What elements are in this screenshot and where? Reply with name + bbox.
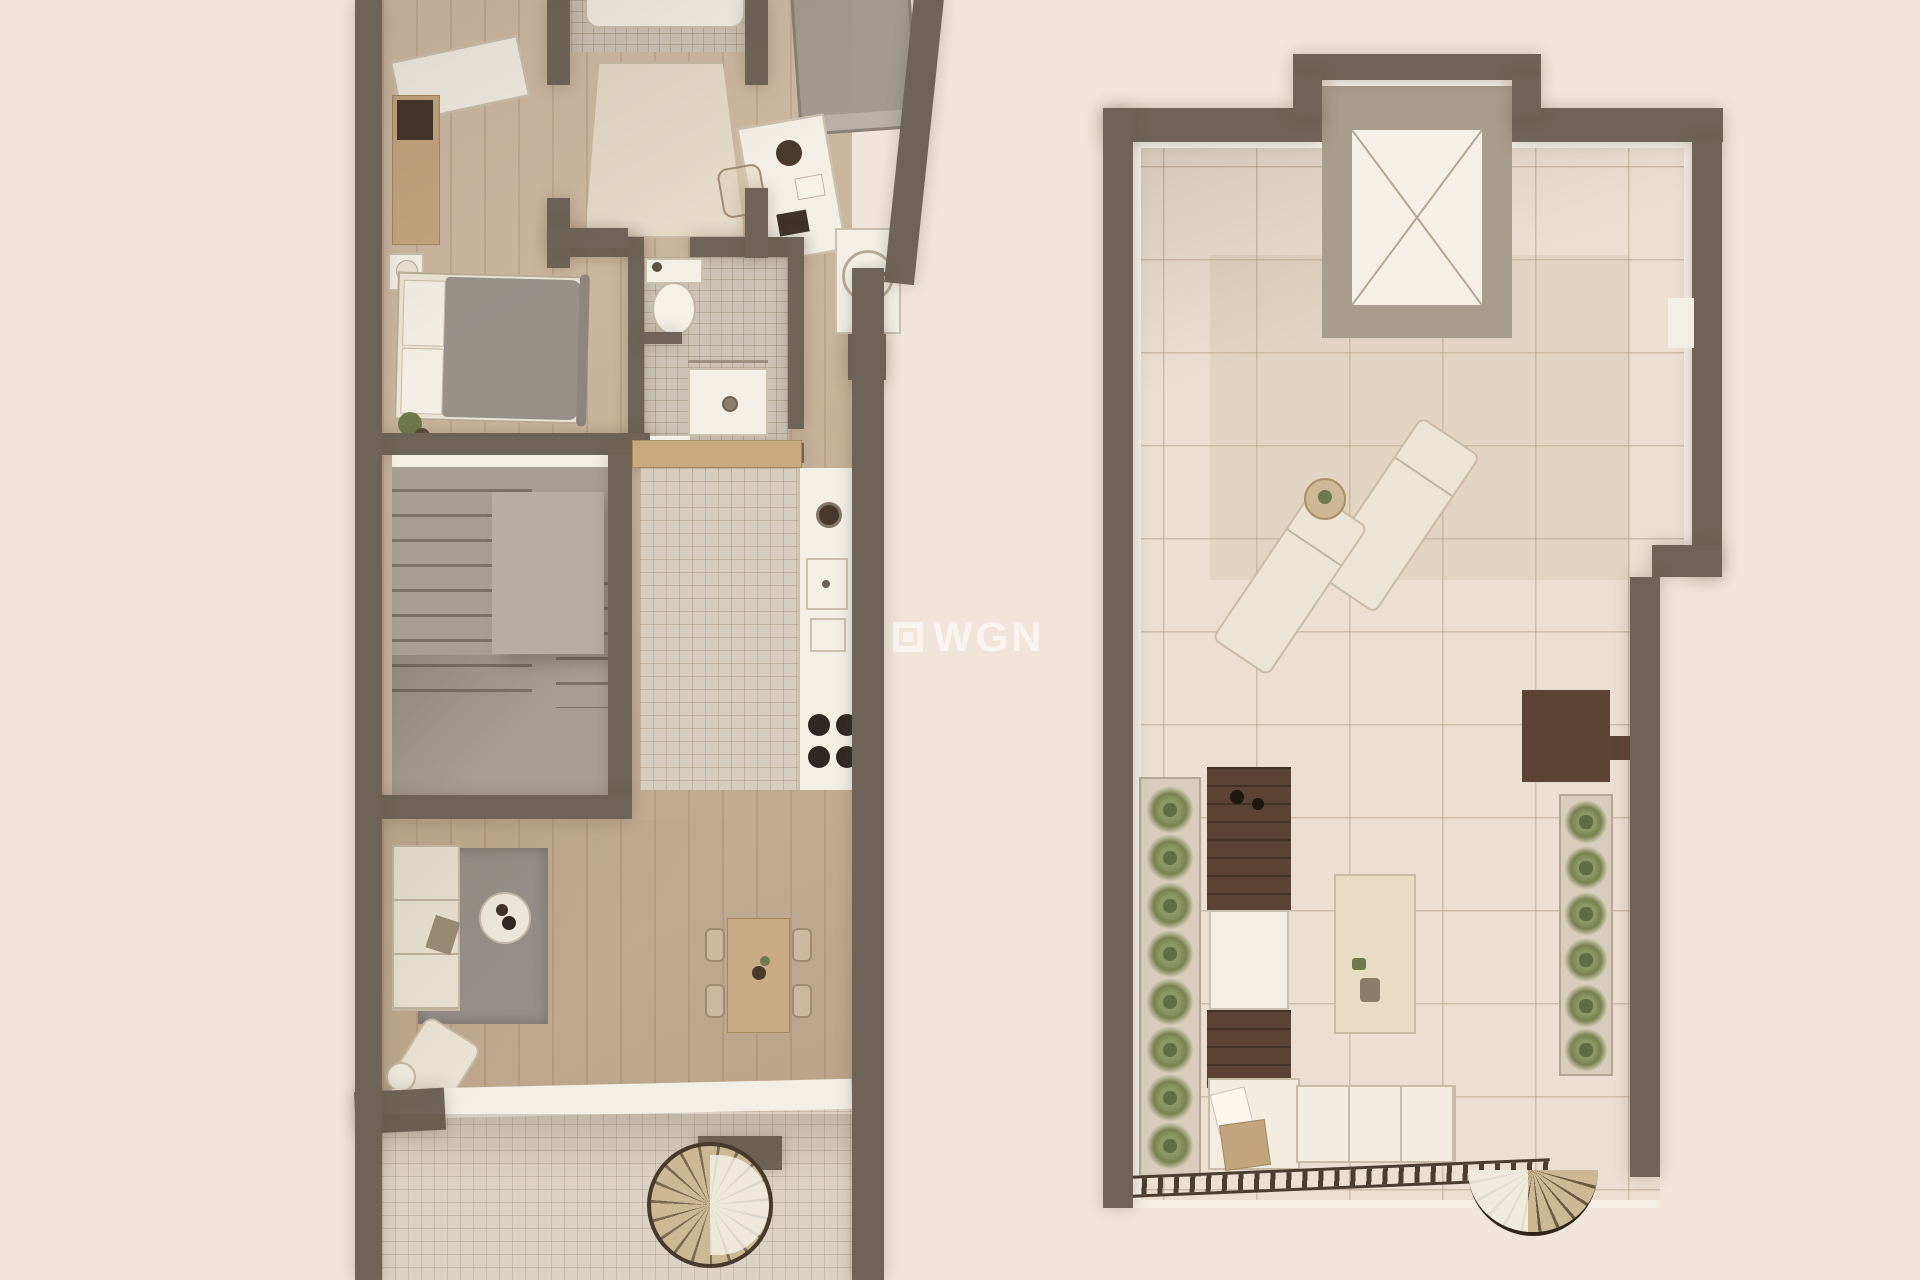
plant	[1146, 978, 1194, 1026]
right-wall-upper	[1692, 140, 1722, 577]
sofa-coffee-table	[1219, 1119, 1271, 1171]
plant	[1564, 892, 1608, 936]
daybed-pillow	[1352, 958, 1366, 970]
plant	[1146, 1122, 1194, 1170]
right-wall-lower	[1630, 577, 1660, 1177]
top-wall-left	[1103, 108, 1322, 142]
left-wall	[1103, 108, 1133, 1208]
skylight-x-lines	[1352, 130, 1482, 305]
skylight-bump-cap	[1293, 54, 1541, 80]
plant	[1146, 930, 1194, 978]
plant	[1146, 882, 1194, 930]
watermark: WGN	[893, 616, 1045, 658]
skylight-bump-side	[1293, 76, 1322, 116]
plant	[1146, 1026, 1194, 1074]
plant	[1564, 846, 1608, 890]
terrace-daybed	[1334, 874, 1416, 1034]
bg-patch	[1660, 577, 1810, 1237]
outdoor-counter-cabinet	[1209, 910, 1289, 1010]
watermark-text: WGN	[933, 616, 1045, 658]
counter-knob	[1230, 790, 1244, 804]
plant	[1146, 834, 1194, 882]
counter-knob	[1252, 798, 1264, 810]
patio-table-plant	[1318, 490, 1332, 504]
right-wall-jog	[1652, 545, 1722, 577]
grill-box	[1522, 690, 1610, 782]
spiral-landing	[1468, 1170, 1528, 1232]
skylight-glass	[1352, 130, 1482, 305]
daybed-towel	[1360, 978, 1380, 1002]
right-wall-notch	[1668, 298, 1694, 348]
top-wall-right	[1512, 108, 1723, 142]
terrace-sofa-long	[1296, 1085, 1456, 1163]
spiral-staircase-upper	[1468, 1170, 1598, 1236]
watermark-logo-icon	[893, 622, 923, 652]
plant	[1564, 938, 1608, 982]
floor-plan-rendering: WGN	[0, 0, 1920, 1280]
plant	[1564, 800, 1608, 844]
plant	[1564, 984, 1608, 1028]
outdoor-counter-lower	[1207, 1010, 1291, 1088]
outdoor-counter-upper	[1207, 767, 1291, 910]
skylight-bump-side	[1512, 76, 1541, 116]
plant	[1564, 1028, 1608, 1072]
plant	[1146, 786, 1194, 834]
plant	[1146, 1074, 1194, 1122]
grill-box-tab	[1608, 736, 1632, 760]
